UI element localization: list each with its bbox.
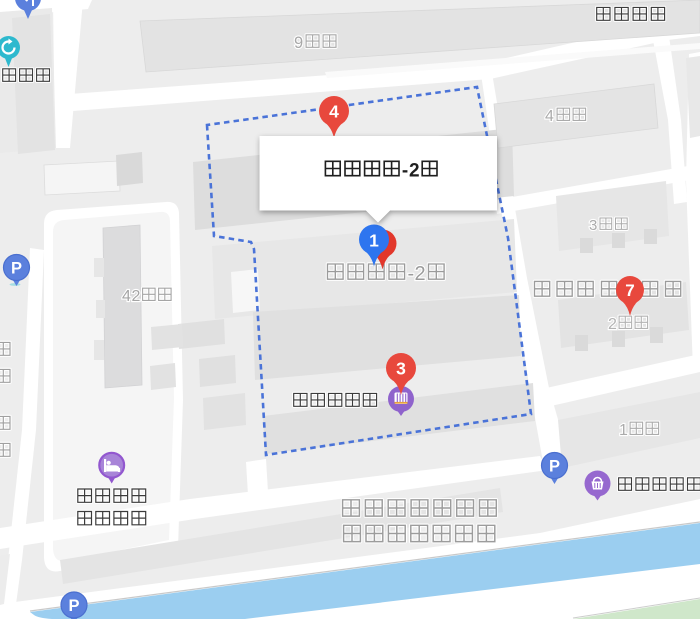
svg-text:9: 9	[294, 34, 303, 52]
svg-text:7: 7	[625, 281, 634, 300]
svg-text:4: 4	[122, 288, 131, 305]
svg-text:-: -	[408, 263, 415, 285]
svg-text:1: 1	[619, 422, 628, 439]
svg-text:P: P	[11, 259, 22, 277]
svg-text:-: -	[402, 161, 408, 182]
svg-text:2: 2	[415, 263, 426, 285]
svg-text:3: 3	[589, 217, 597, 234]
svg-text:3: 3	[396, 358, 406, 378]
svg-text:P: P	[549, 457, 560, 475]
svg-text:1: 1	[369, 230, 379, 250]
svg-text:2: 2	[409, 161, 420, 182]
svg-text:2: 2	[608, 316, 617, 333]
svg-text:4: 4	[545, 108, 554, 125]
svg-text:P: P	[68, 597, 79, 615]
svg-text:2: 2	[132, 288, 141, 305]
svg-text:4: 4	[329, 101, 339, 121]
